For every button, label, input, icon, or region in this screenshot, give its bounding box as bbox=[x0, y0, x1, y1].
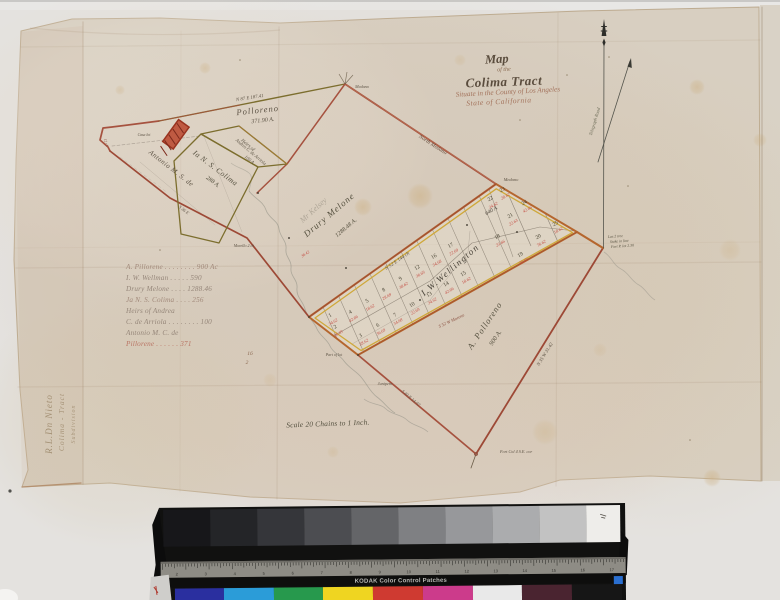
svg-text:Drury Melone . . . . 1288.46: Drury Melone . . . . 1288.46 bbox=[125, 285, 212, 293]
svg-text:16: 16 bbox=[247, 351, 253, 357]
svg-text:Fort Col 4 S.E. cor: Fort Col 4 S.E. cor bbox=[499, 449, 532, 454]
svg-text:C. de Arriola . . . . . . . .: C. de Arriola . . . . . . . . 100 bbox=[126, 318, 212, 326]
svg-text:Medano: Medano bbox=[354, 84, 369, 89]
svg-text:Pillorene . . . . . . 371: Pillorene . . . . . . 371 bbox=[125, 340, 192, 348]
svg-text:Heirs of Andrea: Heirs of Andrea bbox=[125, 307, 175, 315]
svg-text:KODAK Color Control Patches: KODAK Color Control Patches bbox=[355, 578, 448, 585]
svg-text:Antonio M. C. de: Antonio M. C. de bbox=[125, 329, 179, 337]
svg-text:A. Pillorene . . . . . . . .: A. Pillorene . . . . . . . . 900 Ac bbox=[125, 263, 219, 271]
svg-text:Junipero: Junipero bbox=[378, 381, 393, 386]
svg-text:of the: of the bbox=[497, 66, 511, 74]
svg-text:Colima - Tract: Colima - Tract bbox=[57, 393, 66, 451]
svg-text:R.L.Dn Nieto: R.L.Dn Nieto bbox=[44, 394, 54, 455]
svg-text:2: 2 bbox=[246, 360, 249, 366]
svg-text:Morello 2 ch: Morello 2 ch bbox=[233, 243, 255, 248]
svg-text:I. W. Wellman . . . . . 590: I. W. Wellman . . . . . 590 bbox=[125, 274, 202, 282]
svg-text:Casa lot: Casa lot bbox=[138, 133, 152, 137]
svg-text:Medano: Medano bbox=[503, 177, 519, 182]
svg-text:Ja N. S. Colima . . . . 256: Ja N. S. Colima . . . . 256 bbox=[126, 296, 204, 304]
svg-text:Part of lot: Part of lot bbox=[325, 352, 343, 357]
svg-text:Subdivision: Subdivision bbox=[71, 405, 77, 444]
svg-text:Map: Map bbox=[484, 51, 509, 66]
